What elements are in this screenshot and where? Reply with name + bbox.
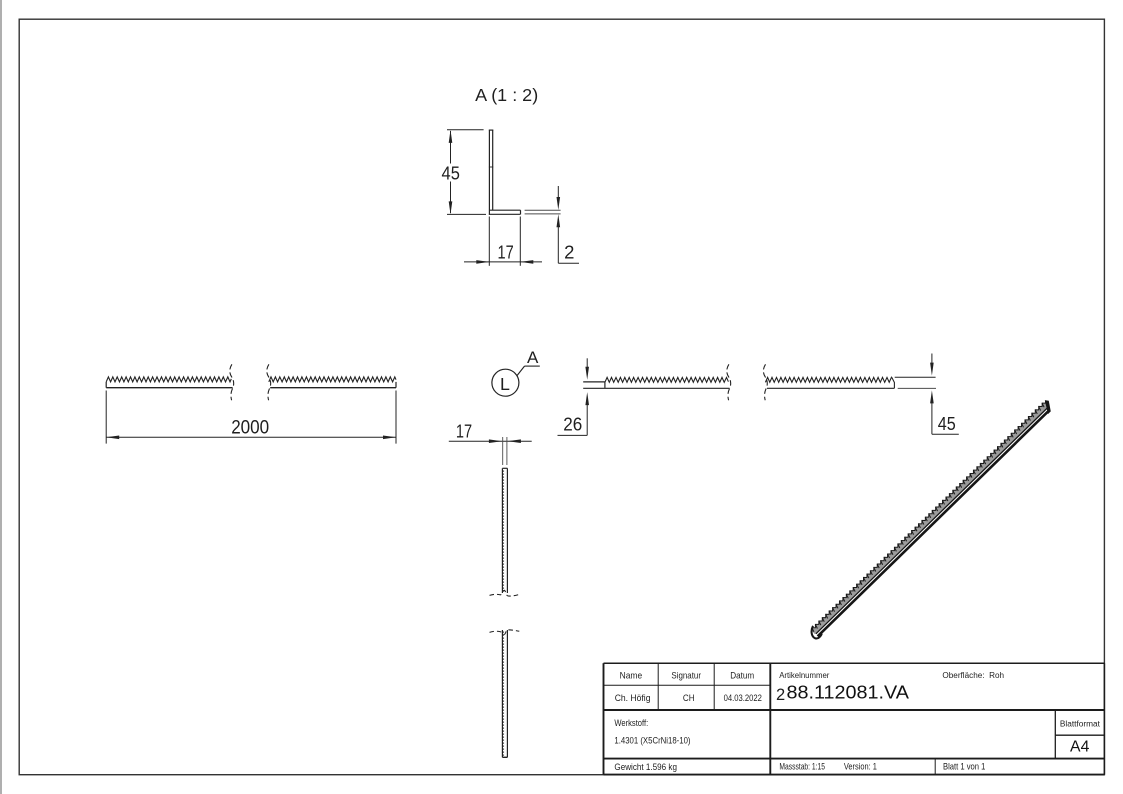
svg-text:Werkstoff:: Werkstoff: [614, 718, 648, 729]
svg-text:1.4301 (X5CrNi18-10): 1.4301 (X5CrNi18-10) [614, 736, 690, 747]
svg-text:45: 45 [442, 162, 460, 183]
svg-text:A4: A4 [1070, 739, 1090, 756]
svg-text:Datum: Datum [730, 671, 754, 682]
svg-text:Blattformat: Blattformat [1060, 719, 1101, 728]
svg-text:Name: Name [620, 671, 643, 682]
svg-text:17: 17 [456, 420, 472, 441]
svg-text:Blatt 1 von 1: Blatt 1 von 1 [943, 762, 985, 773]
svg-text:Version: 1: Version: 1 [844, 762, 877, 773]
svg-text:Gewicht 1.596 kg: Gewicht 1.596 kg [614, 762, 677, 773]
svg-text:2000: 2000 [231, 418, 269, 439]
svg-text:Signatur: Signatur [671, 671, 701, 682]
svg-text:A: A [527, 348, 539, 367]
svg-text:Massstab: 1:15: Massstab: 1:15 [779, 762, 825, 773]
svg-text:17: 17 [498, 242, 514, 263]
svg-text:Artikelnummer: Artikelnummer [779, 671, 830, 680]
svg-text:26: 26 [563, 414, 582, 435]
svg-text:A (1 : 2): A (1 : 2) [475, 85, 538, 105]
svg-text:L: L [500, 374, 510, 394]
svg-text:2: 2 [776, 686, 785, 704]
svg-text:Oberfläche: Roh: Oberfläche: Roh [942, 671, 1004, 680]
svg-text:2: 2 [564, 242, 574, 263]
svg-text:CH: CH [683, 693, 695, 704]
svg-text:Ch. Höfig: Ch. Höfig [615, 693, 651, 704]
svg-text:88.112081.VA: 88.112081.VA [787, 682, 910, 703]
svg-text:45: 45 [938, 413, 956, 434]
svg-text:04.03.2022: 04.03.2022 [724, 693, 762, 704]
